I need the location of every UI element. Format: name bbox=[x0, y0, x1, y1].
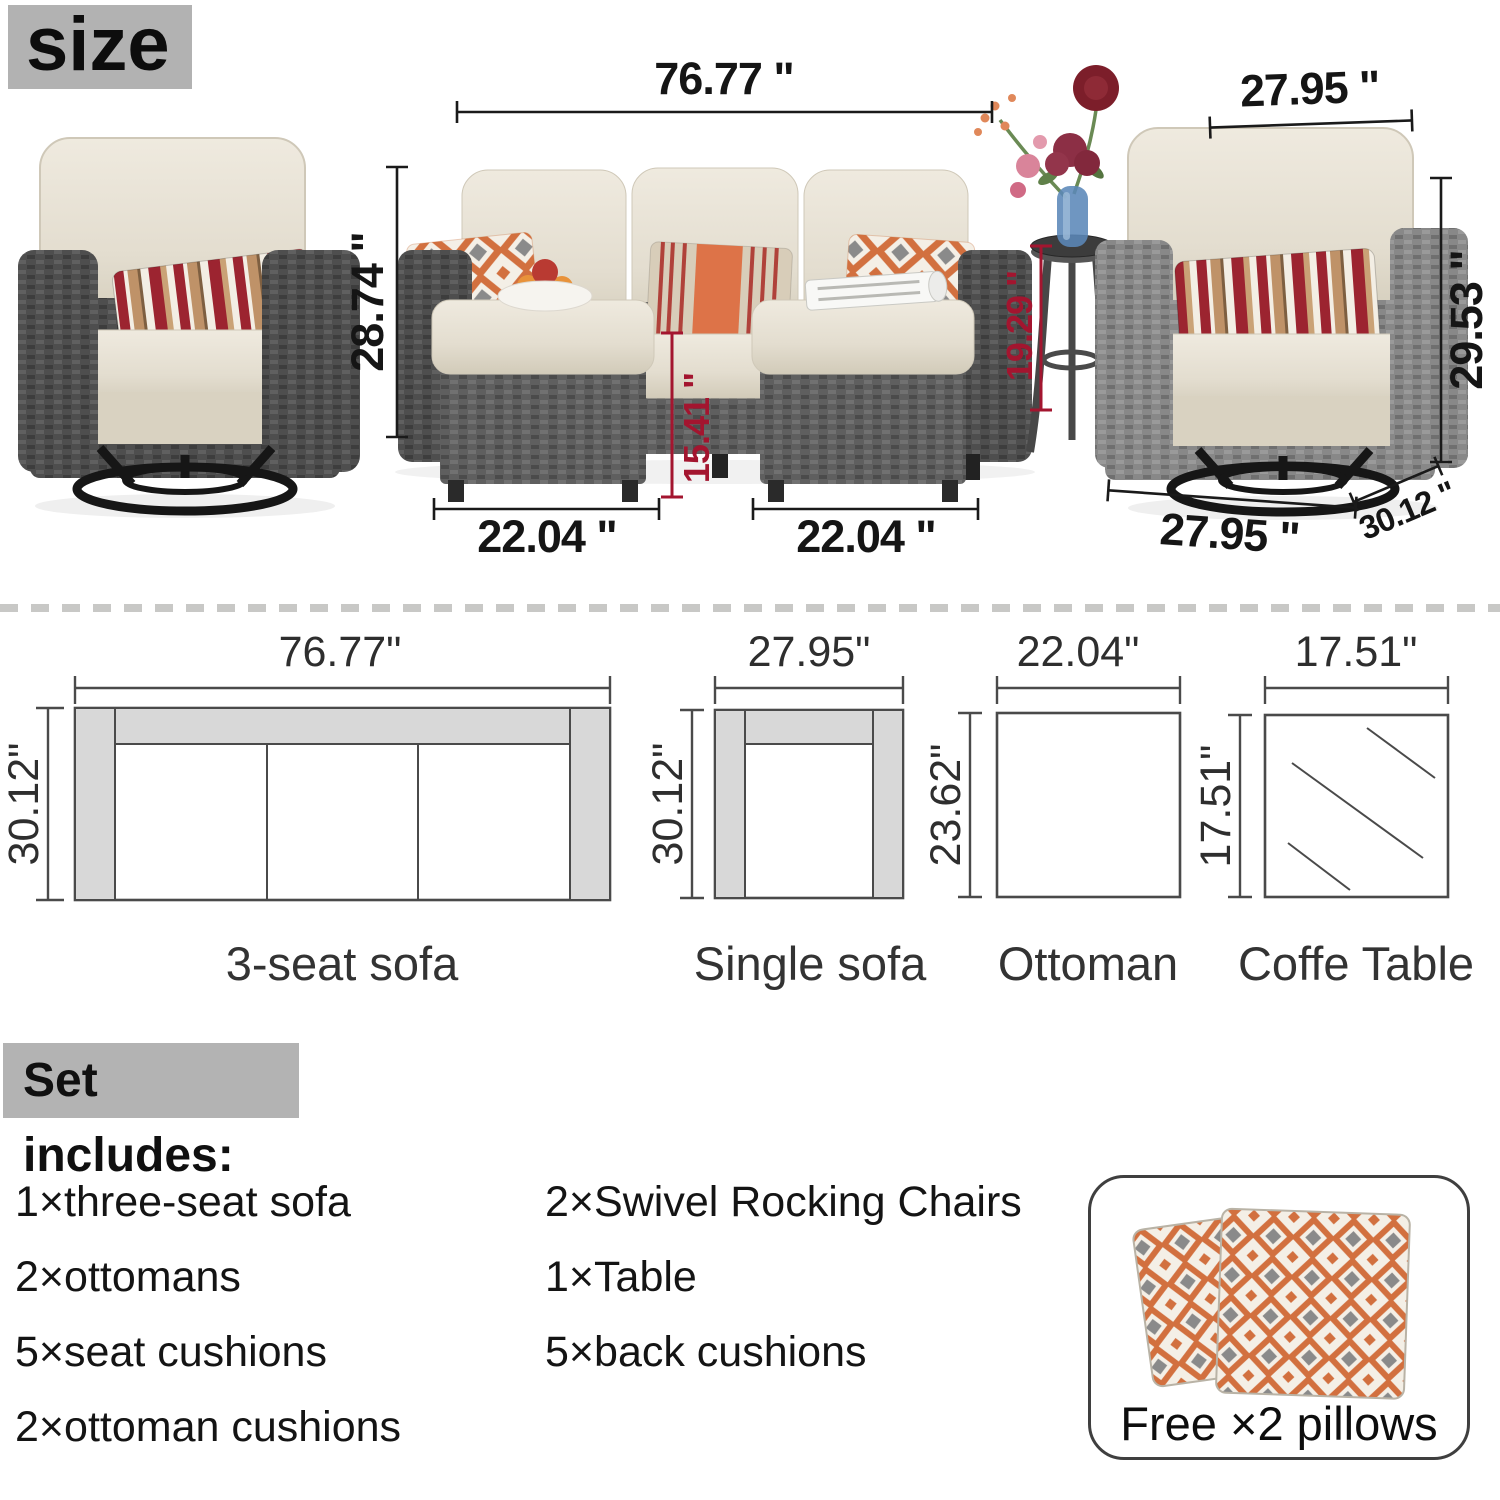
list-item: 5×seat cushions bbox=[15, 1315, 401, 1390]
coffee-table-label: Coffe Table bbox=[1238, 937, 1474, 990]
chair-bottom-width-label: 27.95 " bbox=[1158, 503, 1301, 564]
single-width-label: 27.95" bbox=[748, 628, 871, 676]
free-pillows-box: Free ×2 pillows bbox=[1088, 1175, 1470, 1460]
diagram-coffee-table: 17.51" 17.51" Coffe Table bbox=[1192, 628, 1474, 990]
set-includes-column-2: 2×Swivel Rocking Chairs 1×Table 5×back c… bbox=[545, 1165, 1022, 1390]
diagram-single-sofa: 27.95" 30.12" Single sofa bbox=[644, 628, 927, 990]
set-includes-heading-box: Set includes: bbox=[3, 1043, 299, 1118]
ottoman-height-label: 15.41 " bbox=[676, 373, 717, 483]
set-includes-column-1: 1×three-seat sofa 2×ottomans 5×seat cush… bbox=[15, 1165, 401, 1465]
ottoman-right bbox=[752, 271, 974, 502]
list-item: 5×back cushions bbox=[545, 1315, 1022, 1390]
sofa3-width-label: 76.77" bbox=[279, 628, 402, 676]
ottoman-label: Ottoman bbox=[998, 937, 1178, 990]
free-pillows-label: Free ×2 pillows bbox=[1091, 1396, 1467, 1451]
left-swivel-chair bbox=[18, 138, 360, 518]
table-side-label: 17.51" bbox=[1192, 745, 1240, 868]
sofa3-label: 3-seat sofa bbox=[226, 937, 459, 990]
flower-vase bbox=[974, 65, 1119, 247]
product-photo: 76.77 " 27.95 " 28.74 " 29.53 " 19.29 " … bbox=[0, 0, 1500, 600]
table-width-label: 17.51" bbox=[1295, 628, 1418, 676]
diagram-ottoman: 22.04" 23.62" Ottoman bbox=[922, 628, 1180, 990]
table-height-label: 19.29 " bbox=[999, 271, 1040, 381]
list-item: 2×ottoman cushions bbox=[15, 1390, 401, 1465]
list-item: 1×Table bbox=[545, 1240, 1022, 1315]
left-chair-height-label: 28.74 " bbox=[342, 232, 393, 371]
right-swivel-chair bbox=[1095, 128, 1468, 520]
ottoman-left-width-label: 22.04 " bbox=[477, 511, 616, 562]
list-item: 1×three-seat sofa bbox=[15, 1165, 401, 1240]
chair-top-width-label: 27.95 " bbox=[1239, 61, 1380, 117]
dim-chair-top-width: 27.95 " bbox=[1208, 60, 1412, 139]
list-item: 2×Swivel Rocking Chairs bbox=[545, 1165, 1022, 1240]
sofa-width-label: 76.77 " bbox=[654, 53, 793, 104]
list-item: 2×ottomans bbox=[15, 1240, 401, 1315]
single-height-label: 30.12" bbox=[644, 743, 692, 866]
dim-ottoman-left-width: 22.04 " bbox=[434, 498, 659, 562]
chair-depth-label: 30.12 " bbox=[1354, 474, 1461, 547]
dim-ottoman-right-width: 22.04 " bbox=[753, 498, 978, 562]
dim-sofa-width: 76.77 " bbox=[457, 53, 992, 123]
right-chair-height-label: 29.53 " bbox=[1441, 250, 1492, 389]
ottoman-width-label: 22.04" bbox=[1017, 628, 1140, 676]
sofa3-height-label: 30.12" bbox=[0, 743, 48, 866]
dimension-diagrams: 76.77" 30.12" 3-seat sofa 27.95" 30.12" … bbox=[0, 600, 1500, 1030]
pillow-front bbox=[1216, 1208, 1410, 1398]
single-label: Single sofa bbox=[694, 937, 927, 990]
ottoman-side-label: 23.62" bbox=[922, 744, 970, 867]
ottoman-right-width-label: 22.04 " bbox=[796, 511, 935, 562]
diagram-3-seat-sofa: 76.77" 30.12" 3-seat sofa bbox=[0, 628, 610, 990]
